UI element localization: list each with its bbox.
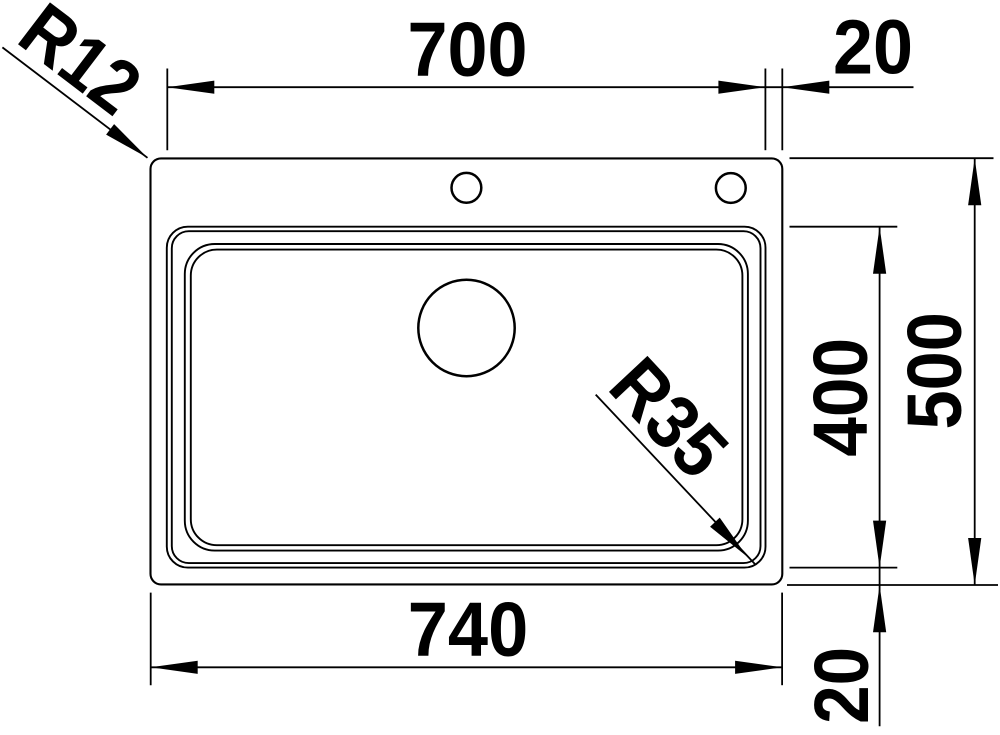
svg-text:400: 400 <box>799 338 884 457</box>
svg-text:20: 20 <box>800 647 885 724</box>
svg-text:20: 20 <box>833 6 913 91</box>
svg-text:700: 700 <box>408 8 528 93</box>
svg-text:500: 500 <box>893 312 978 430</box>
svg-text:740: 740 <box>408 588 529 673</box>
